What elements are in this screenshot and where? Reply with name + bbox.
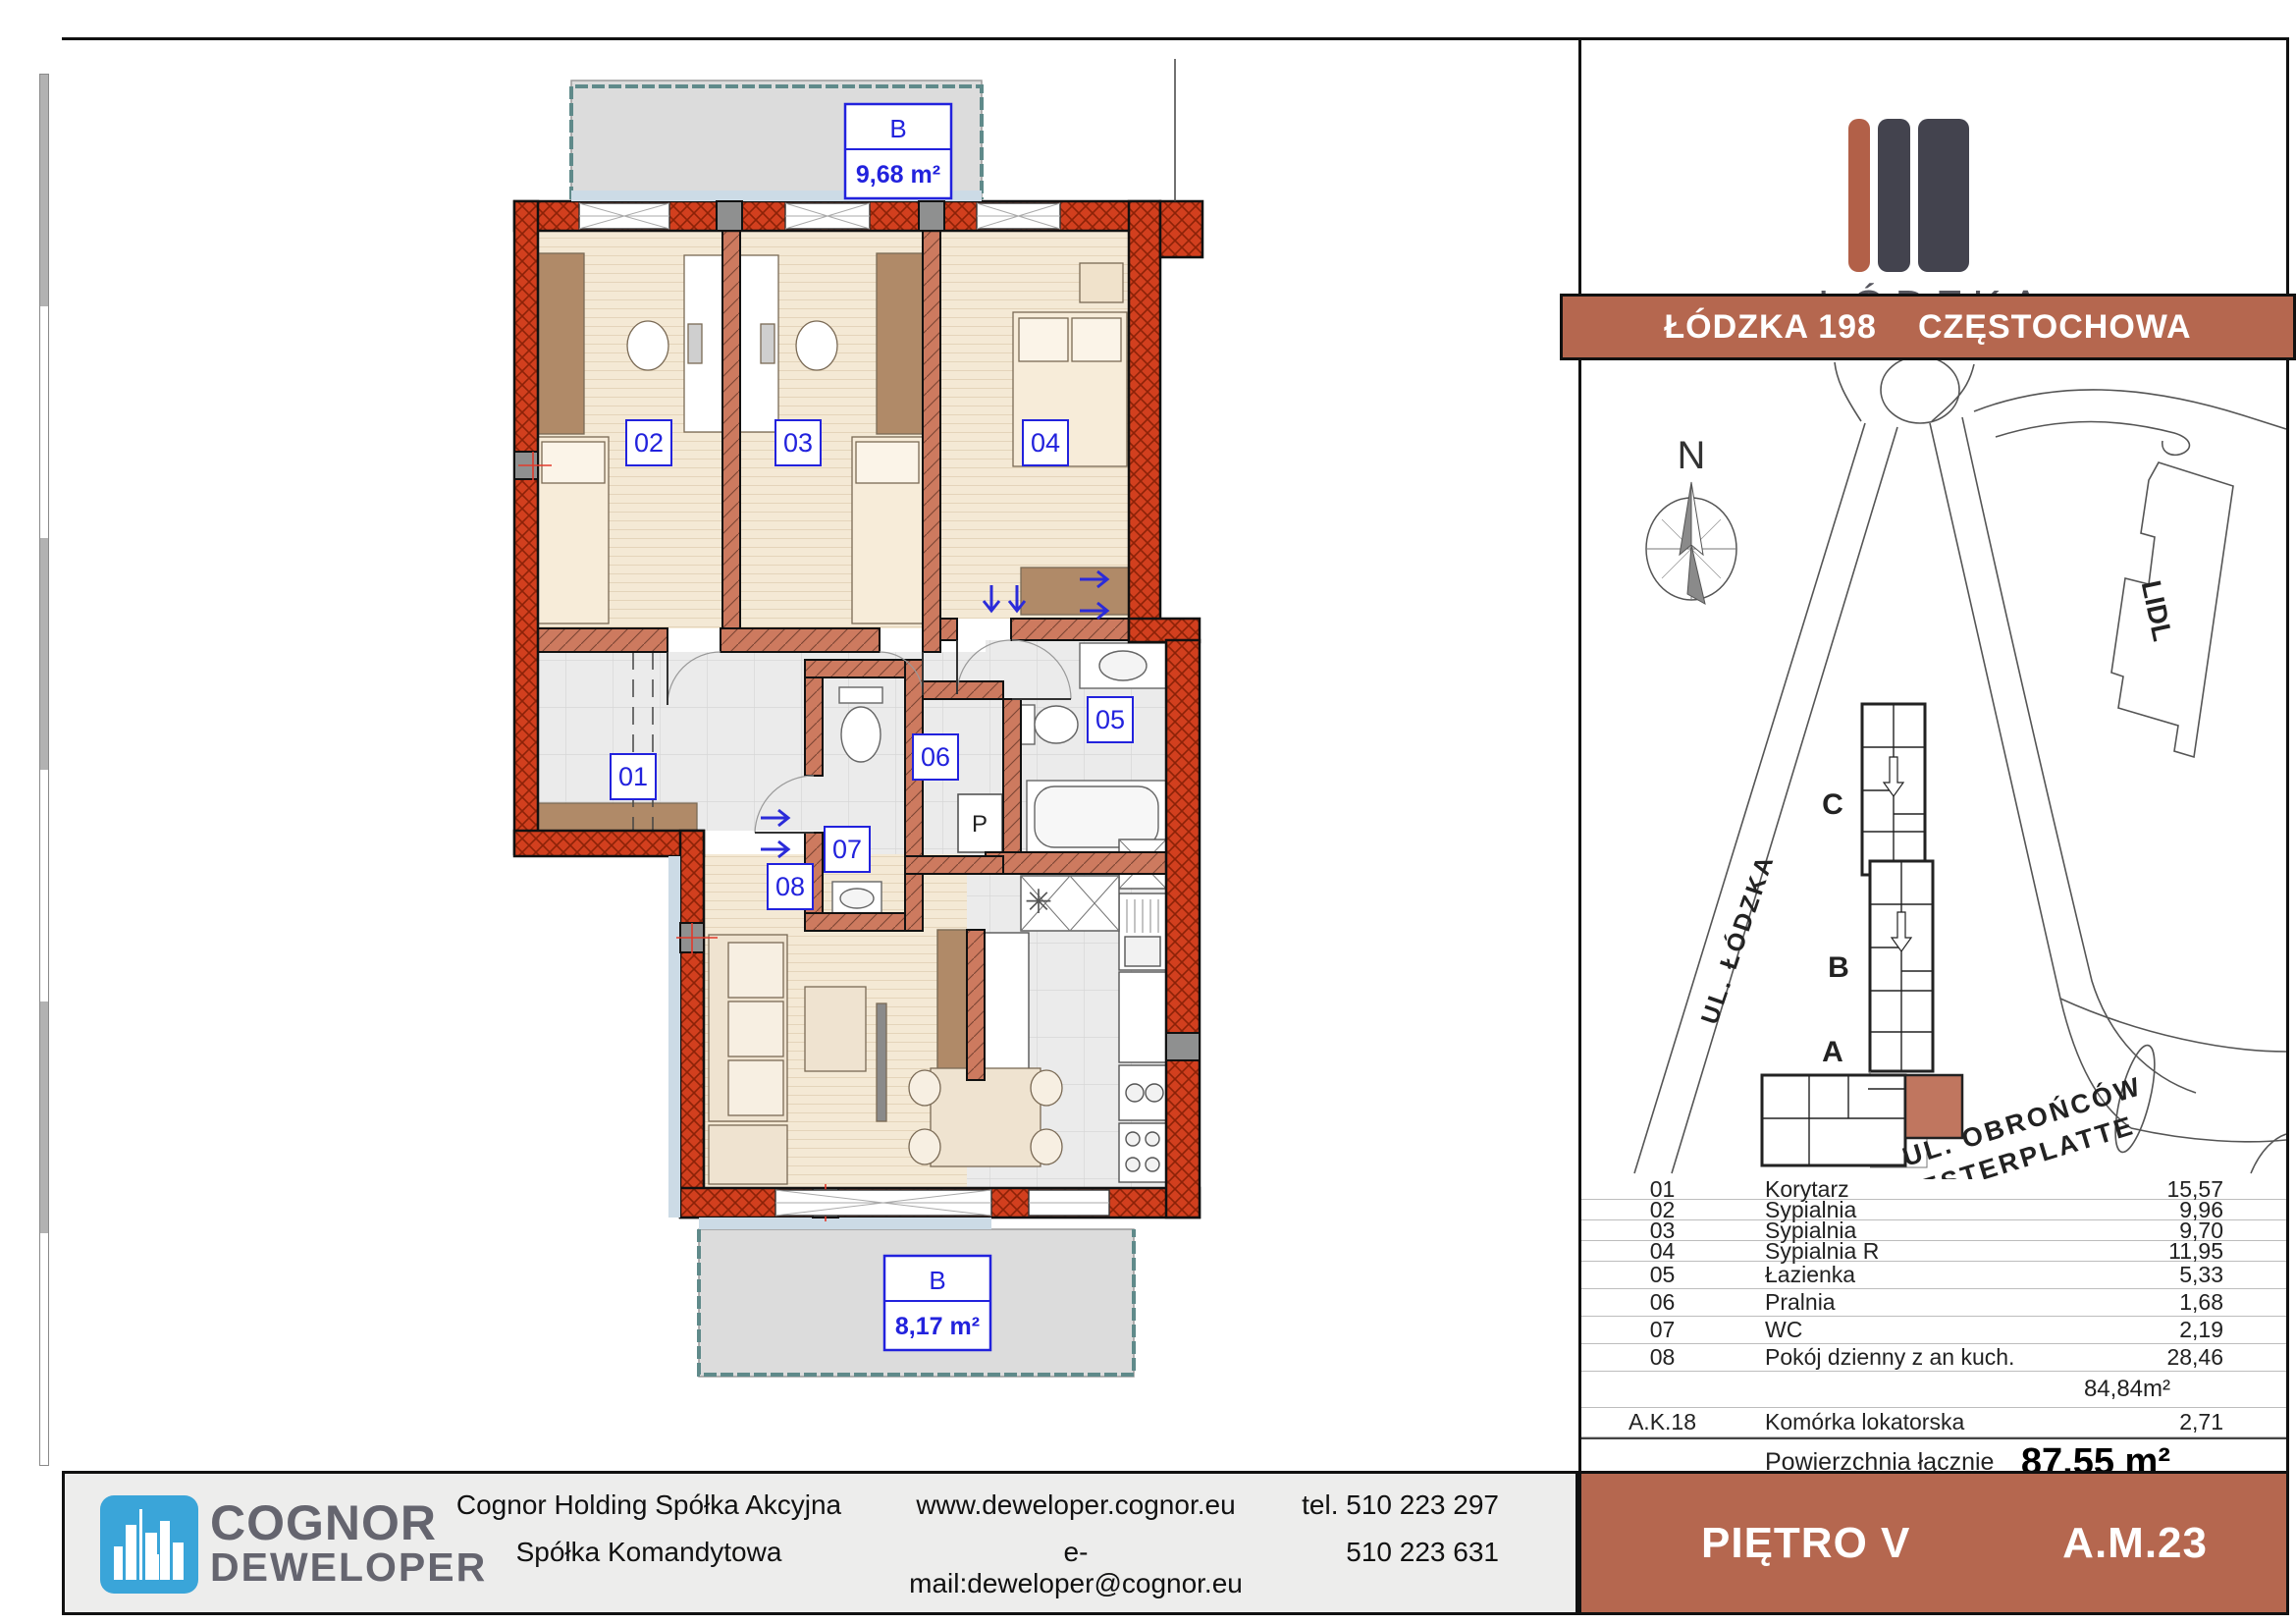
footer: COGNOR DEWELOPER Cognor Holding Spółka A… <box>62 1471 1578 1615</box>
phone1: tel. 510 223 297 <box>1175 1489 1499 1521</box>
svg-text:8,17 m²: 8,17 m² <box>895 1313 980 1340</box>
subtotal-value: 84,84m² <box>2084 1376 2170 1403</box>
svg-text:02: 02 <box>634 428 664 458</box>
table-row: 05Łazienka5,33 <box>1581 1262 2286 1289</box>
info-panel: ŁÓDZKA OSIEDLE ŁÓDZKA 198 CZĘSTOCHOWA <box>1578 37 2289 1615</box>
table-storage-row: A.K.18Komórka lokatorska2,71 <box>1581 1408 2286 1437</box>
svg-text:B: B <box>929 1266 945 1295</box>
table-row: 06Pralnia1,68 <box>1581 1289 2286 1317</box>
svg-text:08: 08 <box>775 872 805 901</box>
compass-icon: N <box>1646 434 1736 604</box>
map-building-c: C <box>1822 704 1925 875</box>
washer: P <box>958 794 1002 852</box>
site-map: N LIDL C B <box>1581 360 2286 1179</box>
svg-text:07: 07 <box>832 835 862 864</box>
table-row: 08Pokój dzienny z an kuch.28,46 <box>1581 1344 2286 1372</box>
floor-unit-box: PIĘTRO V A.M.23 <box>1578 1471 2289 1615</box>
company-line2: Spółka Komandytowa <box>413 1537 884 1568</box>
floor-plan: P ✳ <box>0 0 1578 1473</box>
svg-text:9,68 m²: 9,68 m² <box>856 161 940 189</box>
table-row: 04Sypialnia R11,95 <box>1581 1241 2286 1262</box>
svg-text:04: 04 <box>1031 428 1060 458</box>
svg-text:01: 01 <box>618 762 648 791</box>
balcony-label-top: B 9,68 m² <box>845 104 951 198</box>
project-banner: ŁÓDZKA 198 CZĘSTOCHOWA <box>1560 294 2296 360</box>
lodzka-osiedle-logo-icon <box>1848 119 1976 274</box>
room-area-table: 01Korytarz15,57 02Sypialnia9,96 03Sypial… <box>1581 1179 2286 1485</box>
map-lidl-building: LIDL <box>2111 462 2233 757</box>
footer-company: Cognor Holding Spółka Akcyjna Spółka Kom… <box>413 1474 884 1568</box>
svg-text:06: 06 <box>921 742 950 772</box>
map-building-b: B <box>1828 861 1933 1071</box>
floor-label: PIĘTRO V <box>1701 1519 1910 1568</box>
cognor-logo-icon <box>100 1495 198 1594</box>
sheet-scale-strip <box>39 74 49 1466</box>
svg-text:N: N <box>1678 434 1706 477</box>
table-subtotal-row: 84,84m² <box>1581 1372 2286 1408</box>
svg-text:A: A <box>1822 1036 1843 1068</box>
table-row: 07WC2,19 <box>1581 1317 2286 1344</box>
banner-city: CZĘSTOCHOWA <box>1918 308 2192 347</box>
svg-text:B: B <box>889 114 906 143</box>
phone2: 510 223 631 <box>1175 1537 1499 1568</box>
svg-text:C: C <box>1822 788 1843 821</box>
lamp-symbol: ✳ <box>1025 884 1053 921</box>
svg-text:B: B <box>1828 951 1849 984</box>
svg-text:05: 05 <box>1095 705 1125 734</box>
unit-label: A.M.23 <box>2062 1519 2208 1568</box>
footer-phones: tel. 510 223 297 510 223 631 <box>1175 1474 1499 1568</box>
svg-text:P: P <box>972 811 988 838</box>
svg-text:03: 03 <box>783 428 813 458</box>
company-line1: Cognor Holding Spółka Akcyjna <box>413 1489 884 1521</box>
balcony-label-bottom: B 8,17 m² <box>884 1256 990 1350</box>
banner-street: ŁÓDZKA 198 <box>1664 308 1877 347</box>
